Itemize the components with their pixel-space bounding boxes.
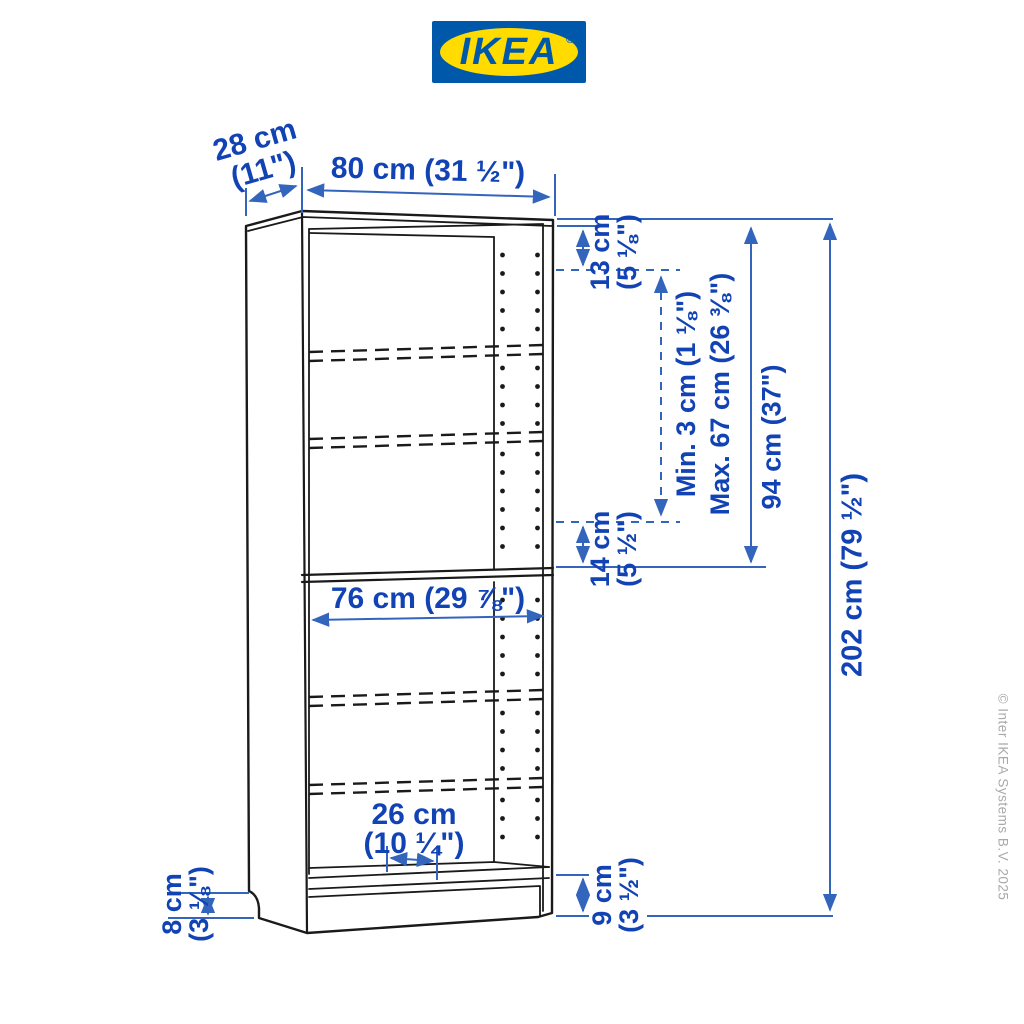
bookcase-line-drawing [0,0,1024,1024]
dim-arrow-width [308,190,549,197]
peg-hole [500,308,505,313]
peg-hole [535,489,540,494]
peg-hole [535,271,540,276]
dimension-13cm-label: 13 cm (5 ⅛") [587,214,641,291]
peg-hole [500,271,505,276]
peg-hole [535,835,540,840]
peg-hole [500,729,505,734]
peg-hole [535,384,540,389]
peg-hole [500,384,505,389]
peg-hole [500,835,505,840]
peg-hole [535,507,540,512]
peg-hole [500,653,505,658]
peg-hole [535,672,540,677]
peg-hole [500,452,505,457]
dimension-shelf-adjustability-label: Min. 3 cm (1 ⅛") Max. 67 cm (26 ⅜") [669,273,737,515]
peg-hole [500,766,505,771]
peg-hole [535,308,540,313]
peg-hole [535,798,540,803]
peg-hole [500,635,505,640]
dimension-9cm-label: 9 cm (3 ½") [589,857,643,933]
peg-hole [535,748,540,753]
peg-hole [535,452,540,457]
peg-hole [500,253,505,258]
peg-hole [500,489,505,494]
peg-hole [535,635,540,640]
peg-hole [535,544,540,549]
peg-hole [535,711,540,716]
peg-hole [500,816,505,821]
peg-hole [535,816,540,821]
peg-hole [535,766,540,771]
dimension-width-label: 80 cm (31 ½") [330,151,525,190]
peg-hole [535,290,540,295]
dimension-14cm-label: 14 cm (5 ½") [587,511,641,588]
dimension-inner-width-label: 76 cm (29 ⅞") [331,582,525,616]
peg-hole [500,798,505,803]
peg-hole [535,327,540,332]
dimension-8cm-label: 8 cm (3 ⅛") [159,866,213,942]
peg-hole [500,327,505,332]
peg-hole [535,598,540,603]
peg-hole [500,366,505,371]
peg-hole [500,544,505,549]
product-dimension-diagram: IKEA ® [0,0,1024,1024]
peg-hole [535,470,540,475]
peg-hole [500,711,505,716]
dimension-94cm-label: 94 cm (37") [757,365,788,510]
peg-hole [535,653,540,658]
peg-hole [500,470,505,475]
peg-hole [535,253,540,258]
dimension-26cm-label: 26 cm (10 ¼") [364,800,465,858]
peg-hole [500,748,505,753]
peg-hole [500,421,505,426]
peg-hole [500,290,505,295]
peg-hole [500,672,505,677]
copyright-notice: © Inter IKEA Systems B.V. 2025 [996,694,1011,901]
peg-hole [535,526,540,531]
peg-hole [500,507,505,512]
peg-hole [535,366,540,371]
dimension-total-height-label: 202 cm (79 ½") [837,473,870,677]
peg-hole [535,403,540,408]
peg-hole [500,526,505,531]
peg-hole [535,729,540,734]
peg-hole [535,421,540,426]
peg-hole [500,403,505,408]
